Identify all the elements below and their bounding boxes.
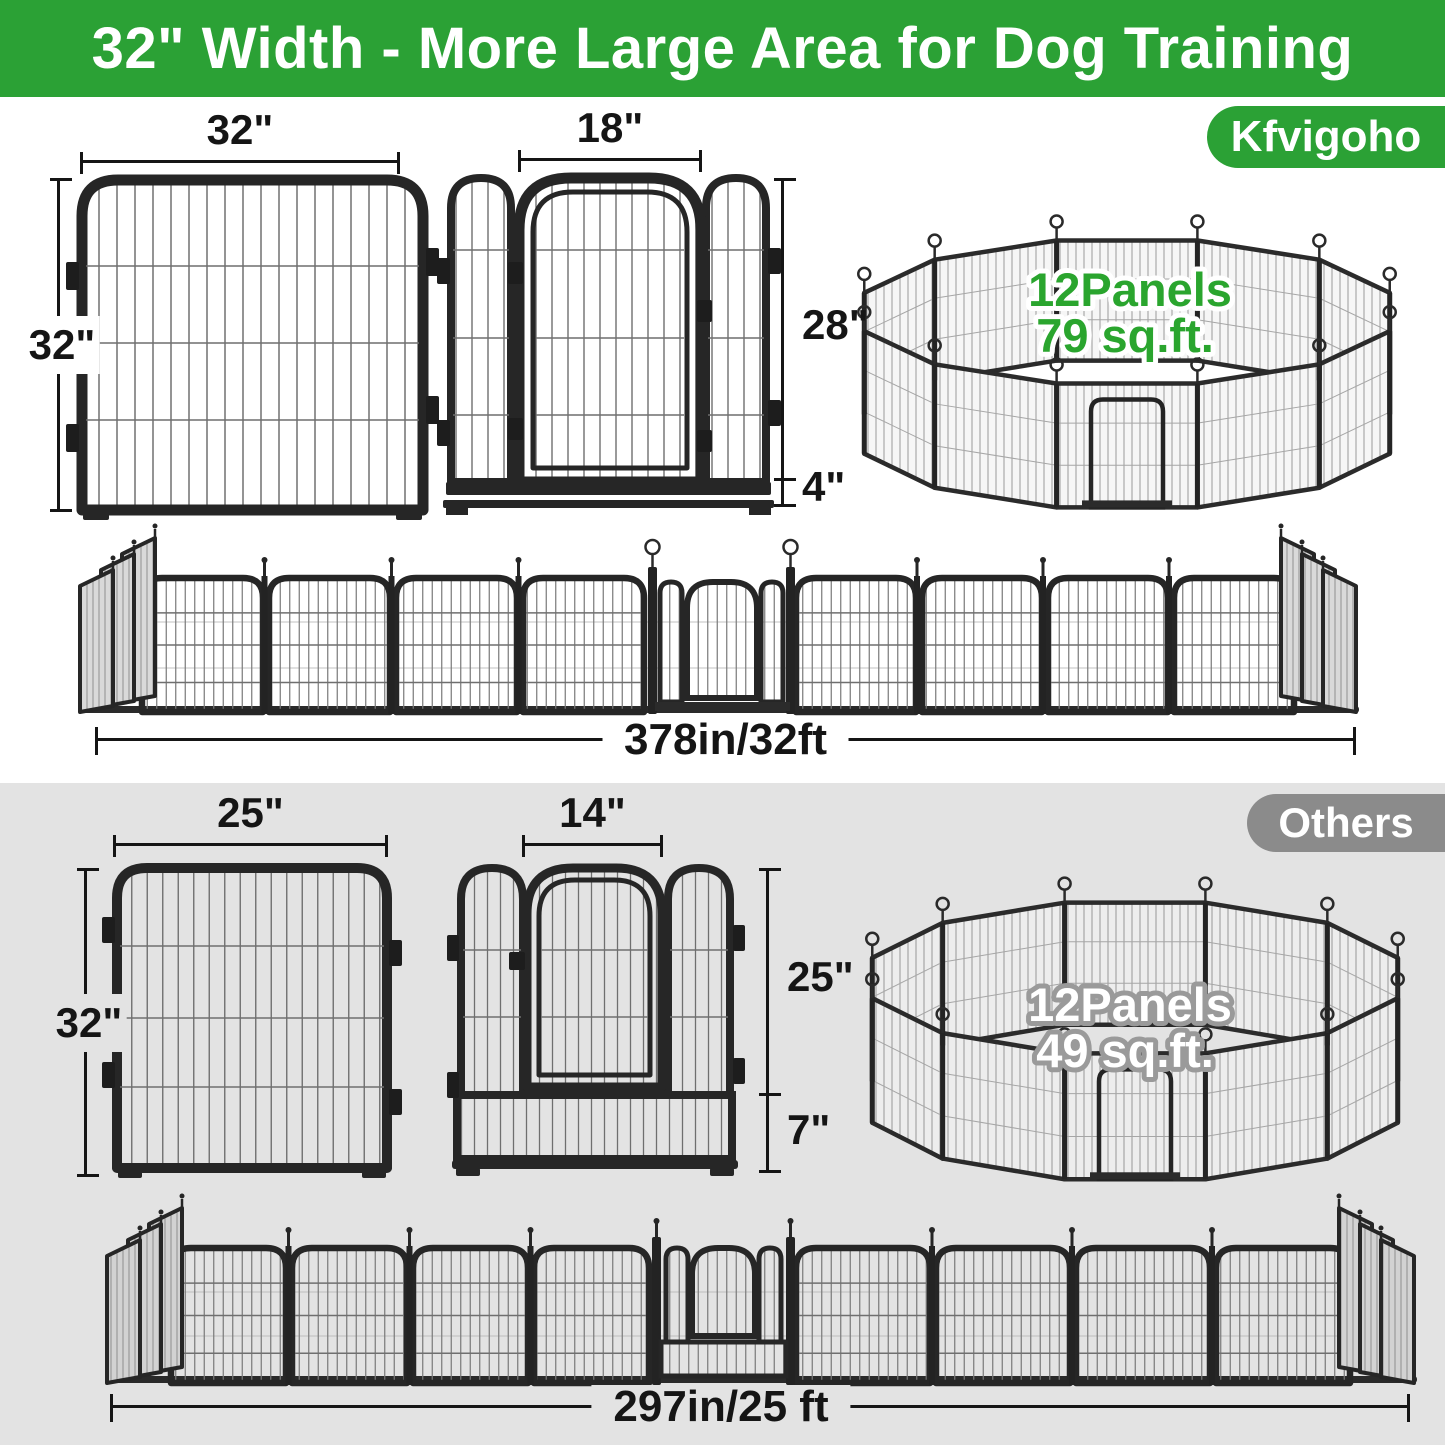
dim-others-row-length-label: 297in/25 ft <box>591 1385 850 1429</box>
dim-others-door-width-label: 14" <box>559 792 626 834</box>
product-infographic: { "banner": { "title": "32\" Width - Mor… <box>0 0 1445 1445</box>
dim-tick <box>1353 727 1356 755</box>
dim-brand-row-length-label: 378in/32ft <box>602 718 849 762</box>
dim-others-door-height: 25" 7" <box>766 868 769 1173</box>
dim-tick <box>759 1170 781 1173</box>
dim-others-panel-height-label: 32" <box>52 994 127 1052</box>
dim-tick <box>774 504 796 507</box>
dim-tick <box>77 868 99 871</box>
others-badge: Others <box>1247 794 1445 852</box>
others-row-art <box>105 1194 1417 1386</box>
dim-others-bottom-height-label: 7" <box>787 1109 830 1151</box>
dim-brand-door-width-label: 18" <box>577 107 644 149</box>
dim-brand-row-length: 378in/32ft <box>95 738 1356 741</box>
brand-row-art <box>78 524 1359 715</box>
brand-pen-illustration: 12Panels79 sq.ft. <box>820 185 1445 525</box>
dim-brand-panel-height-label: 32" <box>25 316 100 374</box>
dim-tick <box>774 478 796 481</box>
dim-brand-door-width: 18" <box>518 158 702 161</box>
dim-tick <box>759 1093 781 1096</box>
banner: 32" Width - More Large Area for Dog Trai… <box>0 0 1445 97</box>
dim-others-panel-height: 32" <box>84 868 87 1177</box>
dim-tick <box>113 835 116 857</box>
others-pen-area-label: 49 sq.ft. <box>1036 1024 1214 1077</box>
dim-tick <box>50 178 72 181</box>
brand-row-illustration <box>60 500 1405 730</box>
dim-brand-door-height-label: 28" <box>802 304 869 346</box>
dim-tick <box>50 509 72 512</box>
others-panel-art <box>102 868 402 1178</box>
dim-tick <box>80 152 83 174</box>
banner-title: 32" Width - More Large Area for Dog Trai… <box>92 15 1354 82</box>
dim-tick <box>1407 1394 1410 1422</box>
dim-others-door-height-label: 25" <box>787 956 854 998</box>
dim-brand-panel-width-label: 32" <box>207 109 274 151</box>
brand-badge: Kfvigoho <box>1207 106 1445 168</box>
dim-tick <box>774 178 796 181</box>
others-row-illustration <box>80 1180 1430 1400</box>
dim-others-panel-width: 25" <box>113 843 388 846</box>
dim-brand-panel-width: 32" <box>80 160 400 163</box>
dim-tick <box>110 1394 113 1422</box>
others-door-panel-illustration <box>435 850 755 1190</box>
dim-tick <box>77 1174 99 1177</box>
brand-door-panel-art <box>437 178 781 515</box>
dim-tick <box>518 150 521 172</box>
brand-panel-art <box>66 180 439 520</box>
brand-door-panel-illustration <box>430 130 830 530</box>
brand-pen-area-label: 79 sq.ft. <box>1036 309 1214 362</box>
others-door-panel-art <box>447 868 745 1176</box>
dim-tick <box>699 150 702 172</box>
dim-brand-panel-height: 32" <box>57 178 60 512</box>
dim-brand-door-height: 28" 4" <box>781 178 784 507</box>
dim-tick <box>522 835 525 857</box>
dim-tick <box>385 835 388 857</box>
dim-brand-bottom-height-label: 4" <box>802 466 845 508</box>
others-pen-illustration: 12Panels49 sq.ft. <box>830 858 1445 1203</box>
dim-tick <box>660 835 663 857</box>
dim-others-door-width: 14" <box>522 843 663 846</box>
others-badge-label: Others <box>1278 799 1413 847</box>
brand-badge-label: Kfvigoho <box>1231 112 1422 162</box>
dim-tick <box>397 152 400 174</box>
brand-panel-illustration <box>55 130 445 530</box>
dim-others-row-length: 297in/25 ft <box>110 1405 1410 1408</box>
dim-tick <box>759 868 781 871</box>
dim-others-panel-width-label: 25" <box>217 792 284 834</box>
dim-tick <box>95 727 98 755</box>
